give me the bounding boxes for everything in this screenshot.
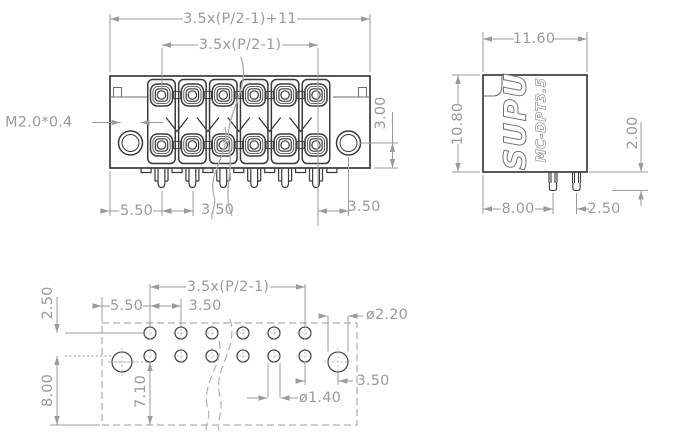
footprint-pin-holes-row2 <box>142 348 314 365</box>
footprint-mounting-holes <box>108 348 353 377</box>
dim-footprint-row-spacing: 2.50 <box>40 286 56 319</box>
front-wire-funnels <box>166 118 312 132</box>
dim-front-edge-pin: 5.50 <box>120 203 153 219</box>
brand-logo: SUPU <box>499 72 534 170</box>
dim-footprint-edge-col: 5.50 <box>110 298 143 314</box>
dim-footprint-mount-offset: 3.50 <box>356 373 389 389</box>
dim-front-span: 3.5x(P/2-1) <box>199 37 281 53</box>
dim-front-screw-offset: 3.00 <box>373 96 389 129</box>
side-view: SUPU MC-DPT3.5 11.60 10.80 2.00 8.00 2.5… <box>450 31 648 217</box>
dim-front-screw-pitch: 3.50 <box>347 199 380 215</box>
connector-technical-drawing: 3.5x(P/2-1)+11 3.5x(P/2-1) M2.0*0.4 3.00… <box>0 0 680 440</box>
front-view: 3.5x(P/2-1)+11 3.5x(P/2-1) M2.0*0.4 3.00… <box>5 11 398 226</box>
dim-footprint-span: 3.5x(P/2-1) <box>187 279 269 295</box>
model-number: MC-DPT3.5 <box>535 78 550 163</box>
dim-footprint-pin-dia: ø1.40 <box>299 390 341 406</box>
side-dimension-lines <box>452 32 648 214</box>
dim-footprint-pitch: 3.50 <box>188 298 221 314</box>
front-screw-hole-left <box>119 131 143 155</box>
dim-side-width: 11.60 <box>513 31 556 47</box>
drawing-sheet: 3.5x(P/2-1)+11 3.5x(P/2-1) M2.0*0.4 3.00… <box>0 0 680 440</box>
dim-footprint-mount-bottom: 7.10 <box>133 375 149 408</box>
footprint-view: 3.5x(P/2-1) 2.50 5.50 3.50 ø2.20 8.00 7.… <box>40 279 408 432</box>
dim-side-height: 10.80 <box>450 103 466 146</box>
dim-front-pitch: 3.50 <box>201 202 234 218</box>
dim-front-overall: 3.5x(P/2-1)+11 <box>183 11 297 27</box>
dim-footprint-mount-dia: ø2.20 <box>366 307 408 323</box>
dim-side-row-pitch: 2.50 <box>587 201 620 217</box>
side-solder-pins <box>549 172 581 191</box>
footprint-break-lines <box>206 319 232 432</box>
footprint-pin-holes-row1 <box>142 325 314 342</box>
front-terminal-slots <box>148 80 330 164</box>
dim-side-pin-length: 2.00 <box>625 116 641 149</box>
front-slot-links <box>173 91 304 148</box>
dim-front-thread: M2.0*0.4 <box>5 115 72 131</box>
footprint-outline <box>102 323 357 425</box>
dim-footprint-bottom: 8.00 <box>40 374 56 407</box>
front-screw-hole-right <box>337 131 361 155</box>
front-solder-pins <box>155 168 323 188</box>
dim-side-row-offset: 8.00 <box>501 201 534 217</box>
